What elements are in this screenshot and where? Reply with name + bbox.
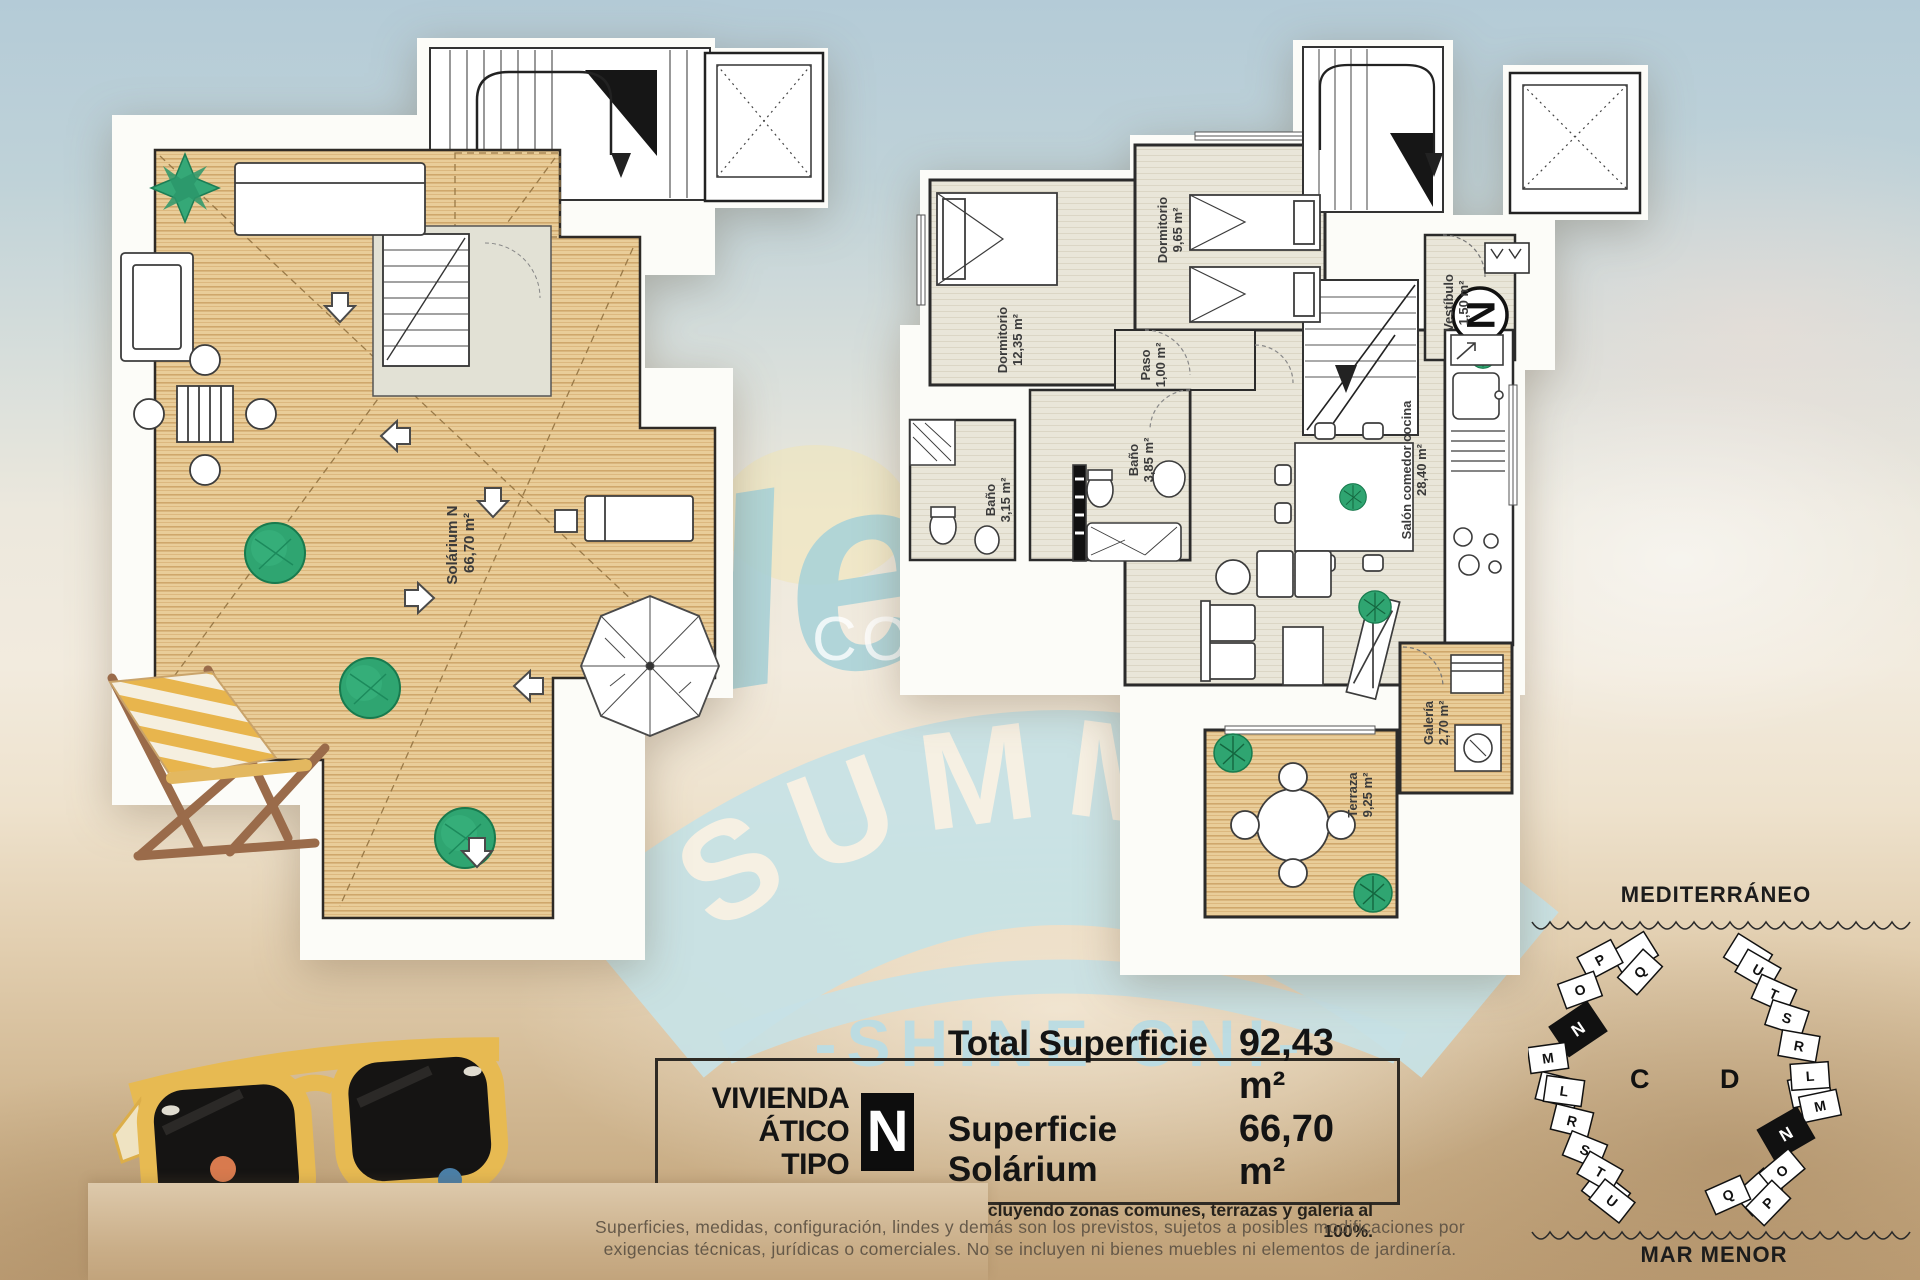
building-d-label: D (1720, 1064, 1740, 1094)
label-dormitorio-a: Dormitorio12,35 m² (995, 307, 1025, 374)
pillow (1294, 201, 1314, 244)
svg-text:L: L (1805, 1068, 1815, 1085)
elevator-shaft (705, 53, 823, 201)
chair (246, 399, 276, 429)
sofa (235, 163, 425, 235)
chair (134, 399, 164, 429)
elevator-shaft (1510, 73, 1640, 213)
label-bano-b: Baño3,85 m² (1126, 437, 1156, 482)
dwelling-type-title: VIVIENDA ÁTICO TIPO (698, 1082, 849, 1181)
building-c: P Q O N M L R S T U C (1528, 932, 1662, 1223)
sofa-seat (1207, 605, 1255, 641)
parasol (581, 596, 719, 736)
sea-label-mediterraneo: MEDITERRÁNEO (1621, 882, 1811, 907)
burner (1459, 555, 1479, 575)
unit-c-M: M (1528, 1042, 1569, 1073)
label-galeria: Galería2,70 m² (1421, 700, 1451, 745)
armchair (1295, 551, 1331, 597)
burner (1454, 528, 1472, 546)
tree (245, 523, 305, 583)
armchair (1257, 551, 1293, 597)
unit-c-L: L (1543, 1075, 1584, 1106)
sea-label-mar-menor: MAR MENOR (1640, 1242, 1787, 1267)
label-vestibulo: Vestíbulo1,50 m² (1441, 274, 1471, 332)
pillow (943, 199, 965, 279)
unit-d-R: R (1778, 1030, 1820, 1062)
site-map: MEDITERRÁNEO MAR MENOR P Q O N M L R S T… (1528, 848, 1920, 1280)
side-table (555, 510, 577, 532)
sink (1453, 373, 1499, 419)
communal-staircase (1303, 47, 1443, 212)
disclaimer-line-1: Superficies, medidas, configuración, lin… (560, 1216, 1500, 1238)
slat-table (177, 386, 233, 442)
unit-d-Q: Q (1705, 1175, 1750, 1214)
label-bano-a: Baño3,15 m² (983, 477, 1013, 522)
legal-disclaimer: Superficies, medidas, configuración, lin… (560, 1216, 1500, 1260)
building-c-label: C (1630, 1064, 1650, 1094)
solarium-label: Solárium N 66,70 m² (444, 501, 478, 584)
burner (1489, 561, 1501, 573)
unit-c-O: O (1558, 971, 1603, 1008)
chair (190, 455, 220, 485)
beach-chair-photo (80, 660, 350, 870)
label-terraza: Terraza9,25 m² (1345, 772, 1375, 818)
terrace-table (1257, 789, 1329, 861)
shoreline-top (1532, 922, 1910, 929)
vivienda-text: VIVIENDA (698, 1082, 849, 1115)
chair (1279, 763, 1307, 791)
inner-staircase (373, 226, 551, 396)
atico-tipo-text: ÁTICO TIPO (698, 1115, 849, 1181)
total-surface-value: 92,43 m² (1239, 1022, 1373, 1108)
bathtub (1087, 523, 1181, 561)
total-surface-label: Total Superficie (948, 1024, 1239, 1064)
shoreline-bottom (1532, 1232, 1910, 1239)
type-letter: N (867, 1098, 909, 1165)
sofa-back (1201, 601, 1210, 681)
apartment-floor-plan: N (895, 35, 1665, 980)
chair (1279, 859, 1307, 887)
coffee-table (1283, 627, 1323, 685)
type-letter-badge: N (861, 1093, 914, 1171)
bidet (975, 526, 999, 554)
chair (1231, 811, 1259, 839)
sink (1153, 461, 1185, 497)
solarium-surface-label: Superficie Solárium (948, 1110, 1239, 1190)
building-d: U T S R L M N O Q P D (1705, 934, 1841, 1226)
solarium-surface-value: 66,70 m² (1239, 1108, 1373, 1194)
unit-d-L: L (1790, 1062, 1830, 1091)
pillow (1294, 273, 1314, 316)
svg-text:M: M (1541, 1049, 1555, 1066)
partial-logo-orange (210, 1156, 236, 1182)
coat-rack (1485, 243, 1529, 273)
brochure-page: Hello SUMMER -SHINE ON!- COSTA GROUP EST… (0, 0, 1920, 1280)
disclaimer-line-2: exigencias técnicas, jurídicas o comerci… (560, 1238, 1500, 1260)
burner (1484, 534, 1498, 548)
hall-floor (1115, 330, 1255, 390)
sofa-seat (1207, 643, 1255, 679)
side-table (1216, 560, 1250, 594)
sun-lounger (585, 496, 693, 541)
chair (190, 345, 220, 375)
